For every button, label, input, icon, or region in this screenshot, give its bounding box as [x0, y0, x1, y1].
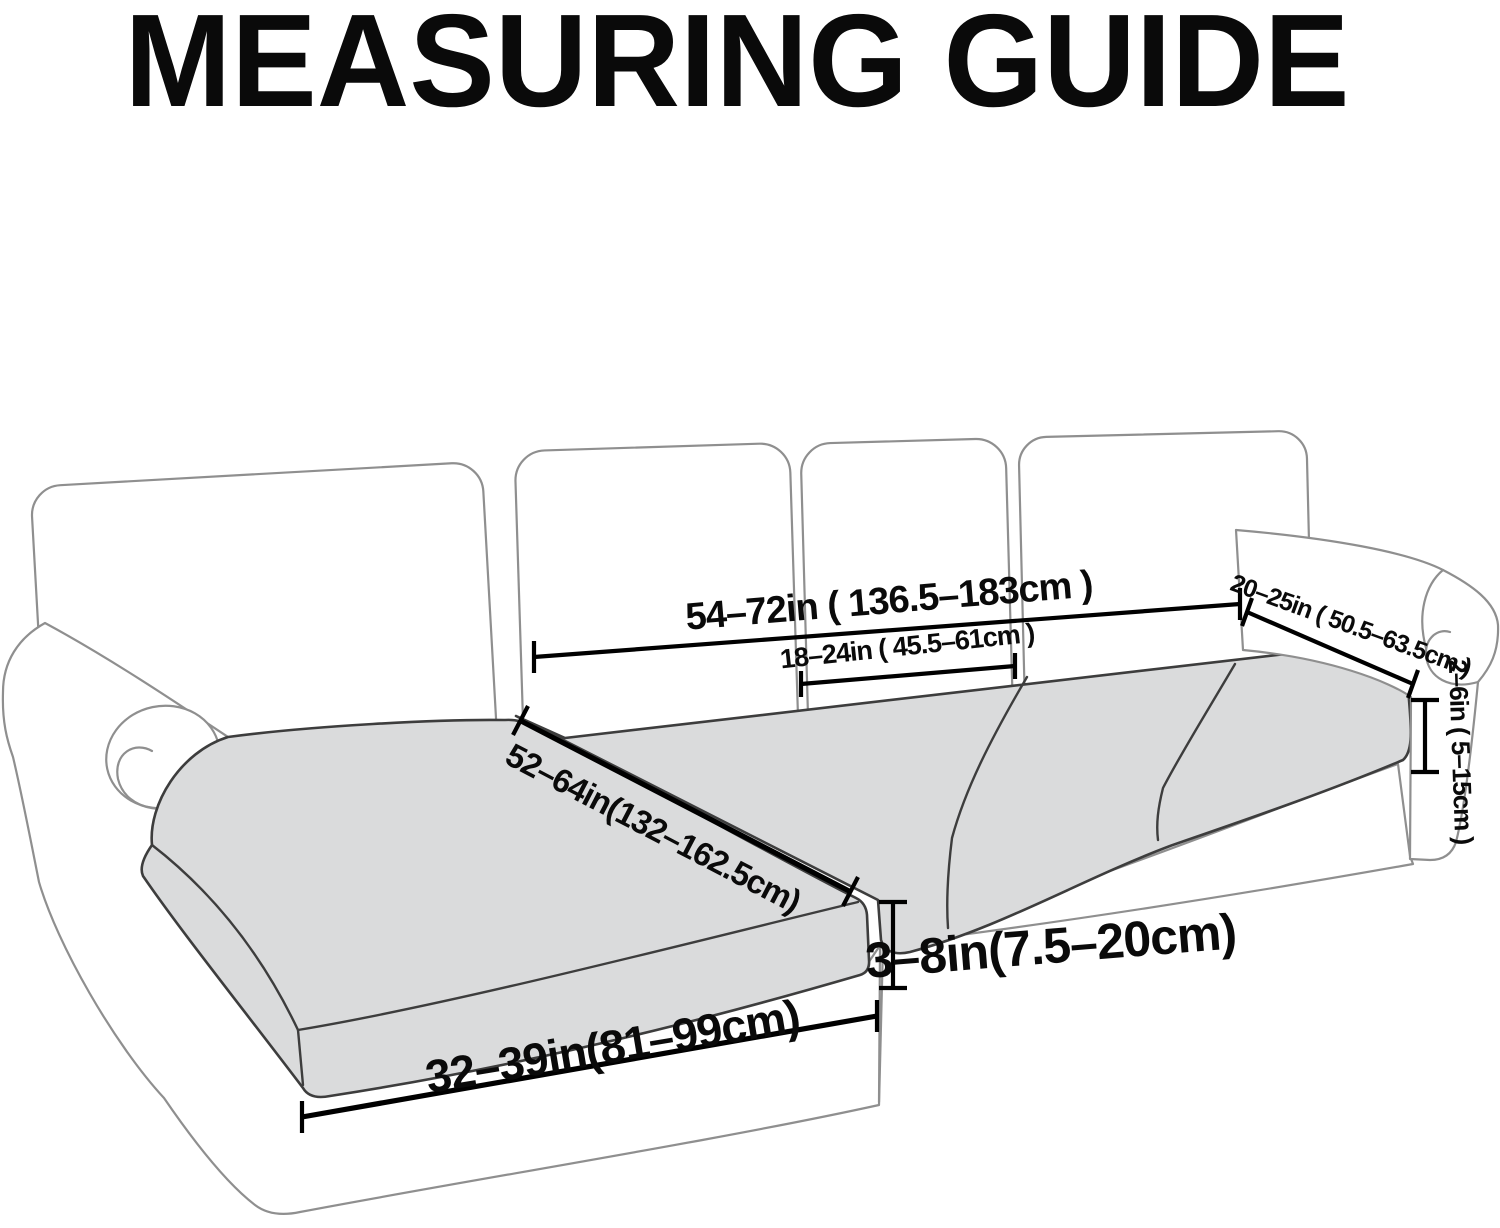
page-title: MEASURING GUIDE: [125, 0, 1350, 134]
measuring-guide-page: MEASURING GUIDE 54–72in ( 136.5–183cm ) …: [0, 0, 1500, 1228]
sofa-measuring-diagram: MEASURING GUIDE 54–72in ( 136.5–183cm ) …: [0, 0, 1500, 1228]
